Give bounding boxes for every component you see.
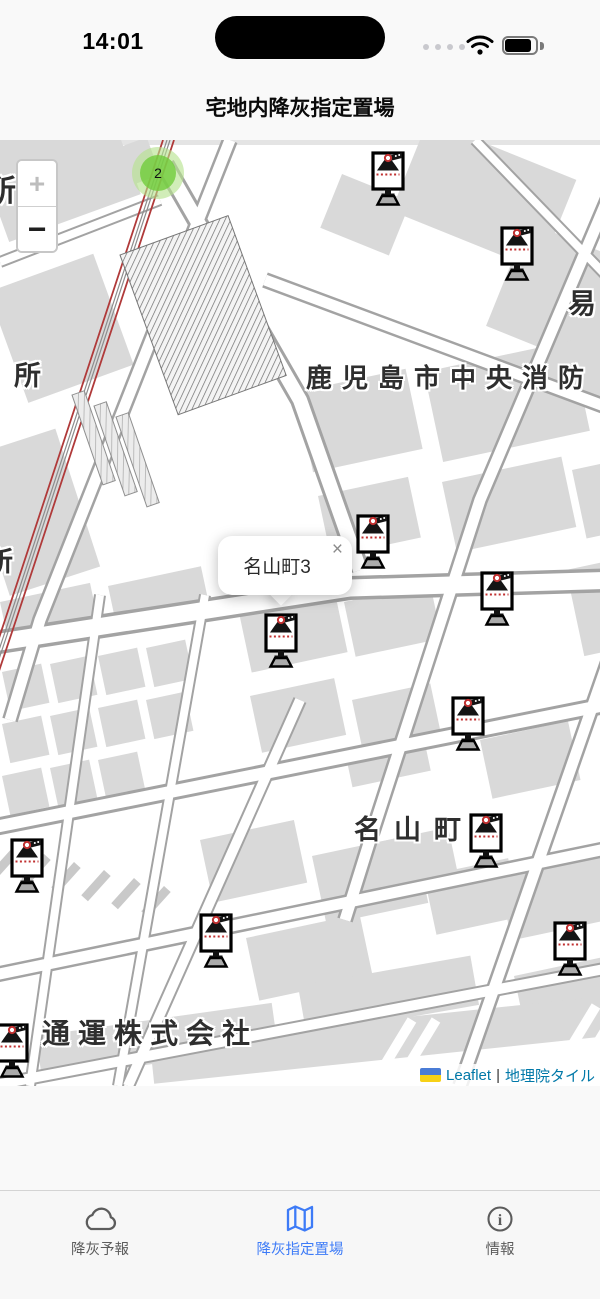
tab-bar: 降灰予報 降灰指定置場 i 情報 [0, 1190, 600, 1299]
volcano-sign-icon [370, 150, 406, 206]
cellular-signal-icon [423, 44, 465, 50]
zoom-out-button[interactable]: − [18, 206, 56, 251]
ash-site-marker[interactable] [370, 150, 406, 206]
zoom-control: + − [16, 159, 58, 253]
header: 14:01 宅地内降灰指定置場 [0, 0, 600, 140]
tab-label: 降灰予報 [71, 1238, 129, 1259]
volcano-sign-icon [355, 513, 391, 569]
ash-site-marker[interactable] [355, 513, 391, 569]
volcano-sign-icon [9, 837, 45, 893]
volcano-sign-icon [552, 920, 588, 976]
ash-site-marker[interactable] [450, 695, 486, 751]
gsi-tiles-link[interactable]: 地理院タイル [505, 1065, 595, 1086]
status-time: 14:01 [78, 28, 148, 55]
volcano-sign-icon [198, 912, 234, 968]
map-view[interactable]: 所所鹿児島市中央消防易所名山町通運株式会社 2 [0, 140, 600, 1086]
map-attribution: Leaflet | 地理院タイル [414, 1064, 600, 1086]
ash-site-marker[interactable] [263, 612, 299, 668]
ash-site-marker[interactable] [552, 920, 588, 976]
marker-layer [0, 140, 600, 1086]
dynamic-island [215, 16, 385, 59]
attribution-separator: | [496, 1067, 500, 1084]
cloud-icon [80, 1204, 120, 1234]
volcano-sign-icon [479, 570, 515, 626]
tab-ashfall-forecast[interactable]: 降灰予報 [0, 1191, 200, 1299]
map-icon [284, 1204, 316, 1234]
volcano-sign-icon [499, 225, 535, 281]
ash-site-marker[interactable] [9, 837, 45, 893]
battery-icon [502, 36, 546, 56]
info-icon: i [484, 1204, 516, 1234]
tab-label: 情報 [486, 1238, 515, 1259]
app-screen: 14:01 宅地内降灰指定置場 [0, 0, 600, 1299]
svg-text:i: i [498, 1212, 503, 1229]
tab-information[interactable]: i 情報 [400, 1191, 600, 1299]
ash-site-marker[interactable] [468, 812, 504, 868]
tab-label: 降灰指定置場 [257, 1238, 344, 1259]
map-popup: 名山町3 × [218, 536, 352, 595]
ash-site-marker[interactable] [499, 225, 535, 281]
leaflet-link[interactable]: Leaflet [446, 1067, 491, 1084]
ukraine-flag-icon [420, 1068, 441, 1082]
ash-site-marker[interactable] [198, 912, 234, 968]
volcano-sign-icon [450, 695, 486, 751]
wifi-icon [466, 35, 494, 56]
volcano-sign-icon [0, 1022, 30, 1078]
volcano-sign-icon [468, 812, 504, 868]
volcano-sign-icon [263, 612, 299, 668]
popup-title: 名山町3 [218, 536, 336, 595]
tab-designated-sites[interactable]: 降灰指定置場 [200, 1191, 400, 1299]
page-title: 宅地内降灰指定置場 [0, 92, 600, 122]
popup-close-button[interactable]: × [332, 540, 343, 559]
ash-site-marker[interactable] [479, 570, 515, 626]
ash-site-marker[interactable] [0, 1022, 30, 1078]
zoom-in-button[interactable]: + [18, 161, 56, 206]
